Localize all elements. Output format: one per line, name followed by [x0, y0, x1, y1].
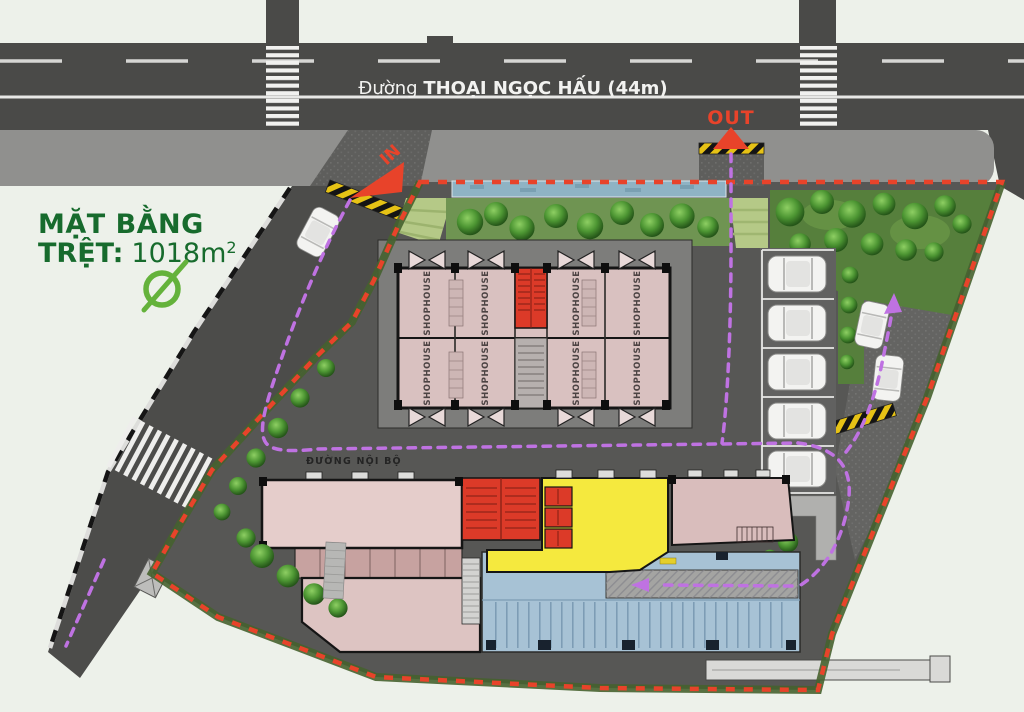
shophouse-unit-label: SHOPHOUSE — [423, 340, 433, 405]
shophouse-unit-label: SHOPHOUSE — [572, 270, 582, 335]
sidewalk — [0, 130, 994, 186]
community-room — [672, 478, 794, 545]
road-name-label: Đường THOẠI NGỌC HẤU (44m) — [358, 75, 667, 99]
shophouse-unit-label: SHOPHOUSE — [633, 340, 643, 405]
out-label: OUT — [707, 107, 755, 129]
internal-road-label: ĐƯỜNG NỘI BỘ — [306, 455, 402, 467]
shophouse-unit-label: SHOPHOUSE — [572, 340, 582, 405]
elevators — [545, 487, 572, 548]
garden-walkway — [323, 542, 346, 599]
parked-car — [768, 354, 826, 390]
parked-car — [768, 403, 826, 439]
circulation-moto-lane — [660, 585, 792, 586]
plan-title-line1: MẶT BẰNG — [38, 204, 204, 240]
crosswalk-right — [800, 46, 837, 128]
site-plan-page: Đường THOẠI NGỌC HẤU (44m) — [0, 0, 1024, 712]
crosswalk-left — [266, 46, 299, 128]
stair-shaft — [462, 558, 480, 624]
lower-core — [515, 338, 547, 408]
parked-car — [768, 305, 826, 341]
side-street-top-left — [266, 0, 299, 44]
moving-car — [872, 354, 905, 402]
parked-car — [768, 256, 826, 292]
landscape-top — [396, 181, 768, 248]
plan-title-line2: TRỆT:1018m2 — [38, 237, 237, 269]
shophouse-unit-label: SHOPHOUSE — [481, 270, 491, 335]
shophouse-unit-label: SHOPHOUSE — [633, 270, 643, 335]
shophouse-unit-label: SHOPHOUSE — [481, 340, 491, 405]
site-plan-canvas: Đường THOẠI NGỌC HẤU (44m) — [0, 0, 1024, 712]
shophouse-block: SHOPHOUSE SHOPHOUSE SHOPHOUSE SHOPHOUSE … — [378, 240, 692, 428]
road-notch — [427, 36, 453, 44]
shophouse-unit-label: SHOPHOUSE — [423, 270, 433, 335]
side-street-top-right — [799, 0, 836, 44]
commerce-building — [262, 480, 462, 548]
